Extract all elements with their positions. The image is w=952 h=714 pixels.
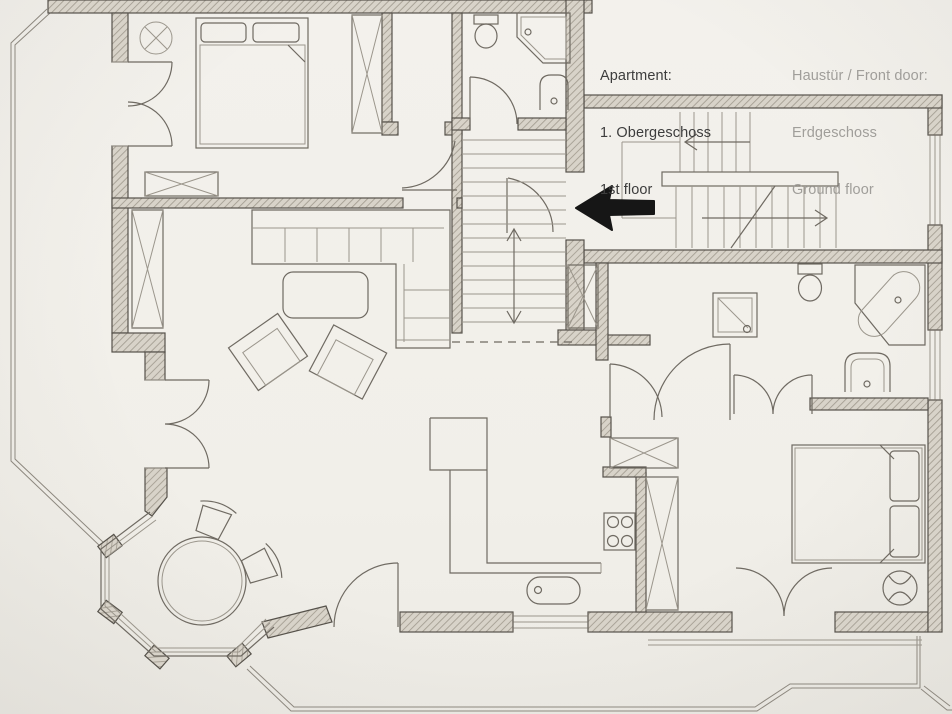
corner-bathtub [852,265,927,345]
toilet [474,15,498,48]
bedroom-double-door [734,375,812,414]
bathroom-right-door [654,344,730,420]
apartment-annotation-title: Apartment: [600,67,711,86]
furniture-bedroom-bottom-right [792,445,925,605]
vestibule-door [402,141,457,190]
stair-direction-arrow [507,229,521,323]
apartment-annotation-line-en: 1st floor [600,181,711,200]
bathroom-right-fixtures [568,264,926,392]
corner-shower [517,13,570,63]
stove [604,513,635,550]
sink [540,75,568,110]
balcony-french-door-bedroom-top-left [128,62,172,146]
corner-sofa [252,210,450,348]
stairwell-window [928,135,942,225]
armchair [309,325,386,399]
tall-cabinet [646,477,678,610]
furniture-bedroom-top-left [140,15,382,196]
double-bed [792,445,925,563]
wardrobe [132,210,163,328]
kitchen-window [513,612,588,632]
front-door-annotation-line-de: Erdgeschoss [792,124,928,143]
kitchen-counter [430,418,601,573]
round-dining-table [158,537,246,625]
furniture-living-room [132,210,450,399]
radiator-icon [883,571,917,605]
double-bed [196,18,308,148]
kitchen-sink [527,577,580,604]
floor-plan-page: Apartment: 1. Obergeschoss 1st floor Hau… [0,0,952,714]
furniture-dining-bay [158,496,285,625]
wardrobe [145,172,218,196]
terrace-door-near-bay [334,563,398,627]
front-door-annotation-line-en: Ground floor [792,181,928,200]
bathroom-top-fixtures [474,13,570,110]
dining-chair [190,496,238,542]
bathroom-window [928,330,942,400]
wardrobe [352,15,382,133]
kitchen-cabinet [610,438,678,468]
bathroom-top-door [470,77,517,124]
toilet [798,264,822,301]
sink [845,353,890,392]
bay-window [101,512,274,656]
front-door-annotation-title: Haustür / Front door: [792,67,928,86]
terrace-french-door-living-room [165,380,209,468]
apartment-annotation: Apartment: 1. Obergeschoss 1st floor [600,29,711,219]
stairs-internal [452,140,572,342]
shower [713,293,757,337]
balcony-french-door-bedroom-bottom [736,568,832,616]
front-door-annotation: Haustür / Front door: Erdgeschoss Ground… [792,29,928,219]
armchair [229,313,308,390]
coffee-table [283,272,368,318]
apartment-annotation-line-de: 1. Obergeschoss [600,124,711,143]
ceiling-fan-icon [140,22,172,54]
apartment-entrance-door [507,178,553,233]
